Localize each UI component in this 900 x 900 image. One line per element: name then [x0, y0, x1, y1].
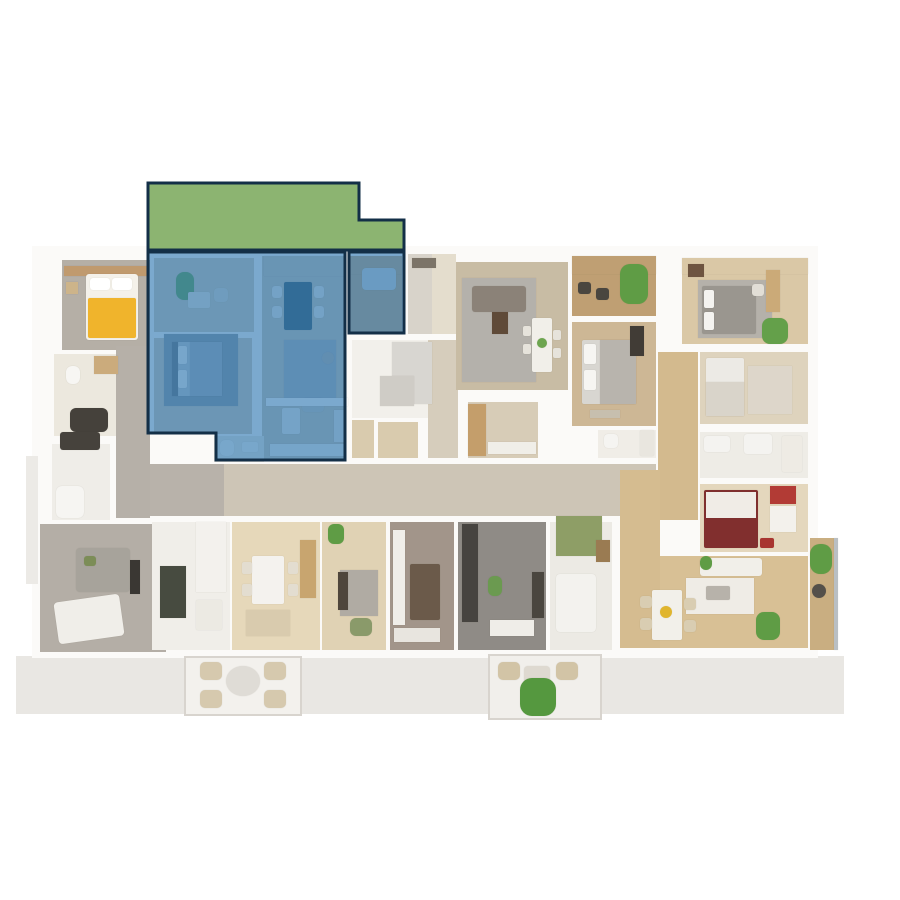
selected-unit-balcony-overlay[interactable]	[349, 252, 404, 333]
selected-unit-overlay[interactable]	[148, 252, 345, 460]
highlight-overlay	[0, 0, 900, 900]
terrace-highlight-overlay[interactable]	[148, 183, 404, 250]
floor-plan	[0, 0, 900, 900]
